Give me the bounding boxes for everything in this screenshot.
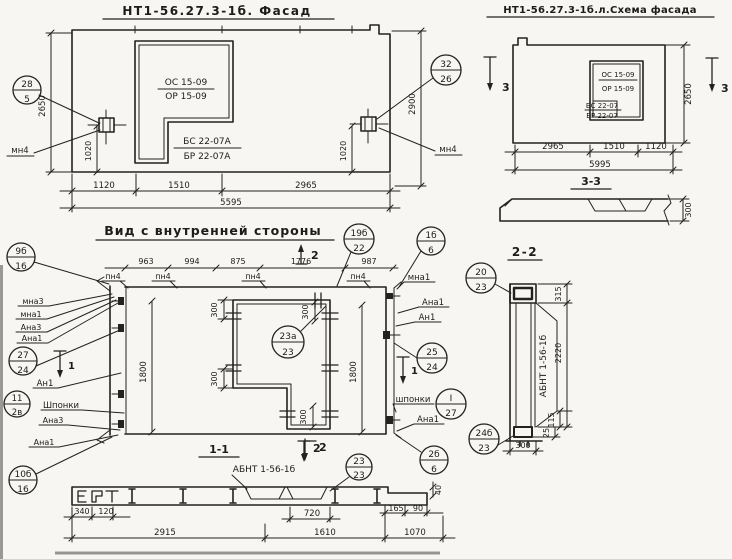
inner-panel-outline [110,286,386,435]
facade-opening-label-bs: БС 22-07А [183,137,231,147]
callout-19b-22-bottom: 22 [353,244,364,254]
inner-left-label-ana1b: Ана1 [34,438,55,447]
schema-label-or: ОР 15-09 [602,85,634,93]
inner-dim300-a: 300 [210,302,219,317]
facade-dim1020r-line [349,123,355,175]
inner-dim1800-left: 1800 [139,361,149,383]
inner-dim-875: 875 [230,257,245,266]
callout-25-24-leader [394,343,417,358]
facade-dim2650-line [48,30,54,175]
callout-11-2v-top: 11 [12,394,23,404]
inner-dim300-a-line [218,297,233,322]
sec22-slab-body [516,303,535,427]
scan-artifact-edge [0,265,3,559]
sec33-strip-outline [500,199,668,221]
sec22-dim25: 25 [542,428,551,438]
inner-left-anchor-marks [118,297,124,428]
callout-27-24-leader [36,330,120,366]
callout-9b-16-bottom: 16 [15,262,27,272]
callout-1b-6-bottom: 6 [428,246,434,256]
facade-dim2900-line [418,28,424,189]
sec11-dim-2915: 2915 [154,528,176,538]
callout-11-2v-bottom: 2в [12,408,22,418]
inner-pn4-label-4: пн4 [350,272,366,281]
facade-opening-label-os: ОС 15-09 [165,78,208,88]
callout-24b-23-bottom: 23 [478,444,489,454]
inner-right-anchor-marks [383,293,393,424]
inner-sec1-left-arrow [57,370,63,378]
facade-anchor-right [361,117,376,131]
inner-dim-1776: 1776 [291,257,311,266]
section-3-3: 3-3 300 [500,175,693,225]
callout-23a-23-top: 23а [280,332,297,342]
callout-2b-6-bottom: 6 [431,465,437,475]
schema-dim-1120: 1120 [645,142,667,152]
sec11-dim-40: 40 [434,485,443,495]
callout-19b-22-top: 19б [350,229,367,239]
inner-sec1-left-label: 1 [68,361,75,372]
callout-32-26-top: 32 [440,60,451,70]
schema-sec3-right-arrow [709,84,715,92]
inner-panel-edges [97,277,401,443]
callout-23a-23-bottom: 23 [282,348,293,358]
inner-sec1-right-arrow [400,376,406,384]
inner-pn4-label-2: пн4 [155,272,171,281]
inner-sec2-top-arrow [298,244,304,252]
callout-28-5-leader [39,95,99,123]
callout-2b-6-leader [396,435,421,452]
inner-pn4-label-1: пн4 [105,272,121,281]
schema-label-bs: БС 22-07 [586,102,618,110]
inner-pn4-label-3: пн4 [245,272,261,281]
inner-right-leader-3 [393,404,434,412]
sec11-sec2-label: 2 [313,442,321,455]
sec11-dim-1610: 1610 [314,528,336,538]
inner-dim300-d: 300 [299,409,308,424]
facade-view: НТ1-56.27.3-1б. Фасад ОС 15-09 ОР 15-09 … [7,4,462,212]
callout-28-5-top: 28 [21,80,33,90]
inner-dim1800l-line [149,298,155,435]
sec22-panel-label: АБНТ 1-56-1б [539,334,549,397]
schema-label-os: ОС 15-09 [602,71,635,79]
inner-left-leader-7 [39,425,120,430]
callout-23-23-bottom: 23 [353,471,364,481]
sec33-title: 3-3 [581,175,601,188]
sec22-top-cap-inner [514,288,532,299]
callout-i-27-top: I [450,394,453,404]
sec22-bottom-cap [514,427,532,437]
sec11-left-channels [78,491,118,502]
sec11-dim-340: 340 [74,507,89,516]
sec11-dim-90: 90 [413,504,423,513]
schema-sec3-left-label: 3 [502,81,510,94]
facade-dim-1120: 1120 [93,181,115,191]
callout-10b-16-bottom: 16 [17,485,29,495]
section-2-2: 2-2 20 23 24б 23 АБНТ 1-56-1б 315 2220 1… [466,245,572,455]
sec33-keys [588,199,652,211]
sec22-dim315: 315 [554,286,563,301]
sec22-dim2220: 2220 [554,343,563,363]
callout-25-24-top: 25 [426,348,437,358]
callout-27-24-bottom: 24 [17,366,29,376]
callout-32-26-bottom: 26 [440,75,452,85]
callout-25-24-bottom: 24 [426,363,438,373]
sec11-dim-1070: 1070 [404,528,426,538]
inner-title: Вид с внутренней стороны [104,223,321,238]
inner-dim300-c-line [218,366,233,391]
schema-label-br: БР 22-07 [586,112,618,120]
facade-dim-total: 5595 [220,198,242,208]
inner-left-label-ana3: Ана3 [21,323,42,332]
facade-dim2650: 2650 [38,95,48,117]
schema-dim-1510: 1510 [603,142,625,152]
sec22-dim115: 115 [547,412,556,427]
inner-dim300-c: 300 [210,371,219,386]
facade-anchor-left-label: мн4 [11,146,28,156]
blueprint-page: НТ1-56.27.3-1б. Фасад ОС 15-09 ОР 15-09 … [0,0,732,559]
inner-dim-994: 994 [184,257,199,266]
schema-dim2650: 2650 [684,83,694,105]
schema-view: НТ1-56.27.3-1б.л.Схема фасада ОС 15-09 О… [484,4,729,174]
inner-dim1800r-line [359,302,365,435]
sec11-panel-label: АБНТ 1-56-1б [233,465,296,475]
schema-dim-2965: 2965 [542,142,564,152]
inner-left-label-mna3: мна3 [22,297,43,306]
sec22-dim300: 300 [515,441,530,450]
callout-20-23-bottom: 23 [475,283,486,293]
inner-dim300-d-line [310,403,316,430]
inner-right-leader-4 [397,424,444,431]
facade-title: НТ1-56.27.3-1б. Фасад [122,4,311,18]
inner-sec1-right-label: 1 [411,366,418,377]
inner-dim300-b-line [312,299,318,324]
inner-left-label-ana1: Ана1 [22,334,43,343]
facade-opening-label-or: ОР 15-09 [165,92,207,102]
sec11-rebar-ticks [129,489,380,503]
sec22-title: 2-2 [512,245,538,259]
inner-left-leader-6 [41,410,124,413]
inner-dim300-b: 300 [301,304,310,319]
facade-dim-2965: 2965 [295,181,317,191]
callout-i-27-bottom: 27 [445,409,456,419]
callout-24b-23-top: 24б [475,429,492,439]
inner-view: Вид с внутренней стороны 19б 22 1б 6 2 9… [4,223,466,495]
callout-20-23-leader [495,284,511,293]
drawing-canvas: НТ1-56.27.3-1б. Фасад ОС 15-09 ОР 15-09 … [0,0,732,559]
sec33-dim300: 300 [684,202,693,217]
inner-sec1-right-mark [397,357,409,379]
schema-sec3-right-label: 3 [721,82,729,95]
facade-anchor-right-cross [350,109,388,143]
callout-23-23-top: 23 [353,457,364,467]
facade-dim2900: 2900 [408,93,418,115]
callout-28-5-bottom: 5 [24,95,30,105]
inner-left-anchor-stubs [112,301,118,424]
callout-20-23-top: 20 [475,268,487,278]
facade-opening-label-br: БР 22-07А [184,152,232,162]
schema-dim-total: 5995 [589,160,611,170]
schema-sec3-left-arrow [487,83,493,91]
callout-32-26-leader [377,78,433,119]
sec11-dim-120: 120 [98,507,113,516]
inner-dim-963: 963 [138,257,153,266]
facade-dimrow1-ext [72,174,390,196]
sec11-dim-165: 165 [388,504,403,513]
facade-anchor-left [99,118,114,132]
inner-left-label-mna1: мна1 [20,310,41,319]
callout-9b-16-top: 9б [15,247,27,257]
inner-dim1800-right: 1800 [349,361,359,383]
section-1-1: 1-1 2 АБНТ 1-56-1б 23 23 340 120 720 165… [64,441,455,542]
facade-anchor-left-cross [88,110,126,144]
sec11-dimrow-line [64,516,455,542]
callout-2b-6-top: 2б [428,450,440,460]
sec11-keys [245,487,327,499]
schema-sec3-left-mark [484,57,496,83]
inner-mna1-top-leader [397,282,435,289]
facade-dim1020r: 1020 [339,141,348,161]
sec22-dim315-line [564,281,570,306]
sec11-title: 1-1 [209,443,229,456]
facade-dim2650-ext [46,33,72,172]
facade-anchor-right-label: мн4 [439,145,456,155]
facade-dim1020l: 1020 [84,141,93,161]
schema-title: НТ1-56.27.3-1б.л.Схема фасада [503,4,697,16]
sec11-dim-720: 720 [304,509,320,519]
callout-10b-16-top: 10б [14,470,31,480]
callout-1b-6-top: 1б [425,231,437,241]
inner-dim-987: 987 [361,257,376,266]
inner-left-label-ana3b: Ана3 [43,416,64,425]
callout-27-24-top: 27 [17,351,28,361]
inner-sec2-top-label: 2 [311,249,319,262]
callout-9b-16-leader [34,262,109,284]
facade-dim-1510: 1510 [168,181,190,191]
schema-sec3-right-mark [706,58,718,84]
